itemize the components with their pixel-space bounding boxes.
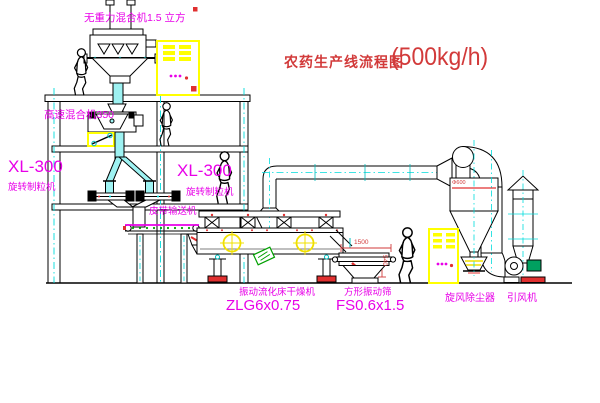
label-dryer-model: ZLG6x0.75 bbox=[226, 298, 300, 313]
label-fan: 引风机 bbox=[507, 294, 537, 304]
dimension-screen-length: 1500 bbox=[354, 240, 368, 247]
label-screen-model: FS0.6x1.5 bbox=[336, 298, 404, 313]
label-belt-conveyor: 皮带输送机 bbox=[149, 207, 197, 217]
label-granulator-left-model: XL-300 bbox=[8, 158, 63, 175]
y-split-pipes bbox=[103, 157, 156, 193]
page-title: 农药生产线流程图 bbox=[284, 55, 404, 69]
label-cyclone: 旋风除尘器 bbox=[445, 294, 495, 304]
process-flow-diagram: 农药生产线流程图 (500kg/h) 无重力混合机1.5 立方 高速混合机350… bbox=[0, 0, 600, 403]
label-high-speed-mixer: 高速混合机350 bbox=[44, 110, 114, 121]
label-gravity-mixer: 无重力混合机1.5 立方 bbox=[84, 13, 186, 24]
dimension-screen-height: 540 bbox=[381, 255, 388, 266]
label-granulator-right-name: 旋转制粒机 bbox=[186, 188, 234, 198]
person-ground bbox=[399, 228, 415, 283]
dimension-cyclone-diameter: Φ600 bbox=[452, 181, 466, 187]
label-granulator-left-name: 旋转制粒机 bbox=[8, 183, 56, 193]
red-marker bbox=[193, 7, 198, 12]
label-granulator-right-model: XL-300 bbox=[177, 162, 232, 179]
dryer-feet bbox=[208, 255, 336, 282]
control-cabinet-top bbox=[157, 41, 199, 95]
granulator-discharge-duct bbox=[133, 207, 145, 227]
control-cabinet-ground bbox=[429, 229, 458, 283]
title-capacity: (500kg/h) bbox=[391, 45, 488, 70]
